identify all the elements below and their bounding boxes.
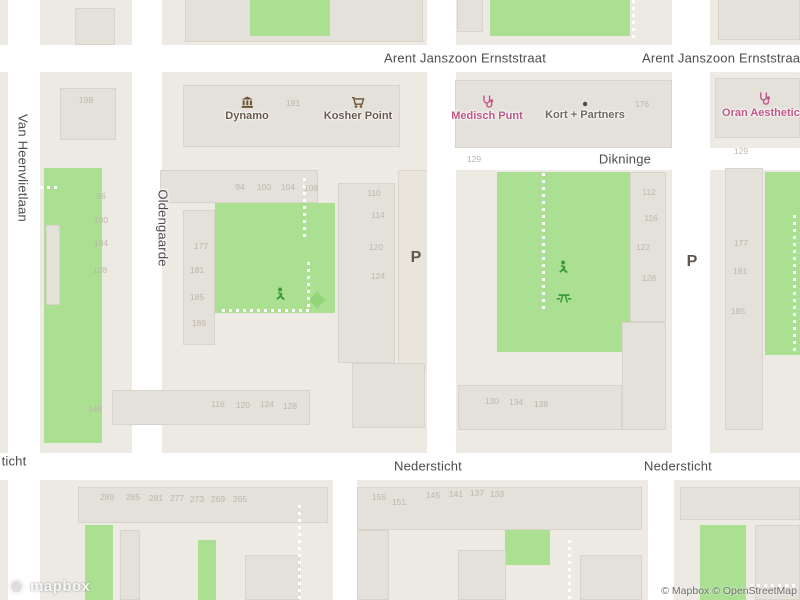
building: [725, 168, 763, 430]
parking-icon: P: [687, 254, 698, 270]
street-label-oldengaarde: Oldengaarde: [156, 189, 171, 266]
poi-label: Kosher Point: [324, 110, 392, 122]
amenity-parking: P: [411, 250, 422, 266]
house-number: 128: [642, 273, 656, 283]
footpath: [307, 262, 310, 310]
house-number: 269: [211, 494, 225, 504]
house-number: 185: [190, 292, 204, 302]
house-number: 273: [190, 494, 204, 504]
building: [352, 363, 425, 428]
building: [357, 530, 389, 600]
house-number: 100: [257, 182, 271, 192]
poi-dot-icon: [581, 100, 589, 108]
mapbox-logo-text: mapbox: [30, 578, 91, 595]
building: [718, 0, 800, 40]
building: [622, 322, 666, 430]
mapbox-logo-icon: [8, 578, 25, 595]
house-number: 104: [281, 182, 295, 192]
house-number: 120: [369, 242, 383, 252]
mapbox-logo[interactable]: mapbox: [8, 578, 91, 595]
house-number: 176: [635, 99, 649, 109]
parking-lot: [398, 170, 428, 372]
poi-label: Dynamo: [225, 110, 268, 122]
building: [580, 555, 642, 600]
shopping-cart-icon: [351, 96, 365, 109]
house-number: 151: [392, 497, 406, 507]
footpath: [793, 215, 796, 355]
street-label-nedersticht: Nedersticht: [394, 459, 462, 474]
road-van-heenvlietlaan: [8, 0, 40, 600]
playground-icon: [557, 260, 572, 275]
house-number: 289: [100, 492, 114, 502]
building: [245, 555, 300, 600]
house-number: 116: [644, 213, 658, 223]
footpath: [632, 0, 635, 38]
park-area: [490, 0, 630, 36]
amenity-picnic: [557, 291, 572, 303]
building: [458, 550, 506, 600]
house-number: 100: [94, 215, 108, 225]
poi-kort-partners: Kort + Partners: [545, 100, 625, 121]
map-canvas[interactable]: Arent Janszoon ErnststraatArent Janszoon…: [0, 0, 800, 600]
house-number: 128: [283, 401, 297, 411]
house-number: 185: [731, 306, 745, 316]
park-area: [198, 540, 216, 600]
house-number: 94: [235, 182, 244, 192]
house-number: 110: [367, 188, 381, 198]
house-number: 129: [467, 154, 481, 164]
poi-label: Kort + Partners: [545, 109, 625, 121]
street-label-dikninge: Dikninge: [599, 152, 651, 167]
house-number: 177: [734, 238, 748, 248]
amenity-parking: P: [687, 254, 698, 270]
stethoscope-icon: [480, 95, 494, 109]
building: [680, 487, 800, 520]
playground-icon: [274, 287, 289, 302]
house-number: 108: [304, 183, 318, 193]
road-middle-vertical: [427, 0, 456, 480]
poi-kosher-point: Kosher Point: [324, 96, 392, 122]
building: [78, 487, 328, 523]
building: [338, 183, 395, 363]
house-number: 108: [93, 265, 107, 275]
poi-oran-aesthetics: Oran Aesthetics: [722, 92, 800, 119]
house-number: 285: [126, 492, 140, 502]
house-number: 141: [449, 489, 463, 499]
house-number: 116: [211, 399, 225, 409]
map-attribution[interactable]: © Mapbox © OpenStreetMap: [661, 585, 797, 597]
poi-medisch-punt: Medisch Punt: [451, 95, 523, 122]
poi-label: Oran Aesthetics: [722, 107, 800, 119]
footpath: [298, 505, 301, 600]
house-number: 181: [733, 266, 747, 276]
building: [120, 530, 140, 600]
house-number: 177: [194, 241, 208, 251]
building: [75, 8, 115, 45]
amenity-playground: [274, 287, 289, 302]
street-label-van-heenvlietlaan: Van Heenvlietlaan: [16, 114, 31, 222]
house-number: 120: [236, 400, 250, 410]
street-label-arent-janszoon-ernststraat: Arent Janszoon Ernststraat: [384, 51, 546, 66]
park-area: [250, 0, 330, 36]
house-number: 277: [170, 493, 184, 503]
road-bottom-vertical-1: [333, 480, 357, 600]
house-number: 96: [96, 191, 105, 201]
footpath: [542, 152, 545, 312]
picnic-table-icon: [557, 291, 572, 303]
house-number: 281: [149, 493, 163, 503]
building: [46, 225, 60, 305]
house-number: 129: [734, 146, 748, 156]
house-number: 137: [470, 488, 484, 498]
house-number: 122: [636, 242, 650, 252]
street-label-ticht: ticht: [2, 454, 27, 469]
house-number: 133: [490, 489, 504, 499]
building: [457, 0, 483, 32]
poi-label: Medisch Punt: [451, 110, 523, 122]
house-number: 114: [371, 210, 385, 220]
house-number: 124: [371, 271, 385, 281]
house-number: 265: [233, 494, 247, 504]
footpath: [568, 540, 571, 600]
road-bottom-vertical-2: [648, 480, 674, 600]
house-number: 104: [94, 238, 108, 248]
house-number: 138: [534, 399, 548, 409]
street-label-arent-janszoon-ernststraat: Arent Janszoon Ernststraat: [642, 51, 800, 66]
street-label-nedersticht: Nedersticht: [644, 459, 712, 474]
house-number: 145: [426, 490, 440, 500]
road-right-vertical: [672, 0, 710, 480]
house-number: 124: [260, 399, 274, 409]
footpath: [40, 186, 60, 189]
house-number: 181: [190, 265, 204, 275]
poi-dynamo: Dynamo: [225, 96, 268, 122]
park-area: [505, 525, 550, 565]
park-area: [44, 168, 102, 443]
footpath: [222, 309, 310, 312]
house-number: 199: [79, 95, 93, 105]
house-number: 134: [509, 397, 523, 407]
house-number: 112: [642, 187, 656, 197]
house-number: 148: [88, 404, 102, 414]
museum-icon: [240, 96, 254, 109]
house-number: 130: [485, 396, 499, 406]
parking-icon: P: [411, 250, 422, 266]
house-number: 191: [286, 98, 300, 108]
house-number: 155: [372, 492, 386, 502]
amenity-playground: [557, 260, 572, 275]
stethoscope-icon: [757, 92, 771, 106]
house-number: 189: [192, 318, 206, 328]
